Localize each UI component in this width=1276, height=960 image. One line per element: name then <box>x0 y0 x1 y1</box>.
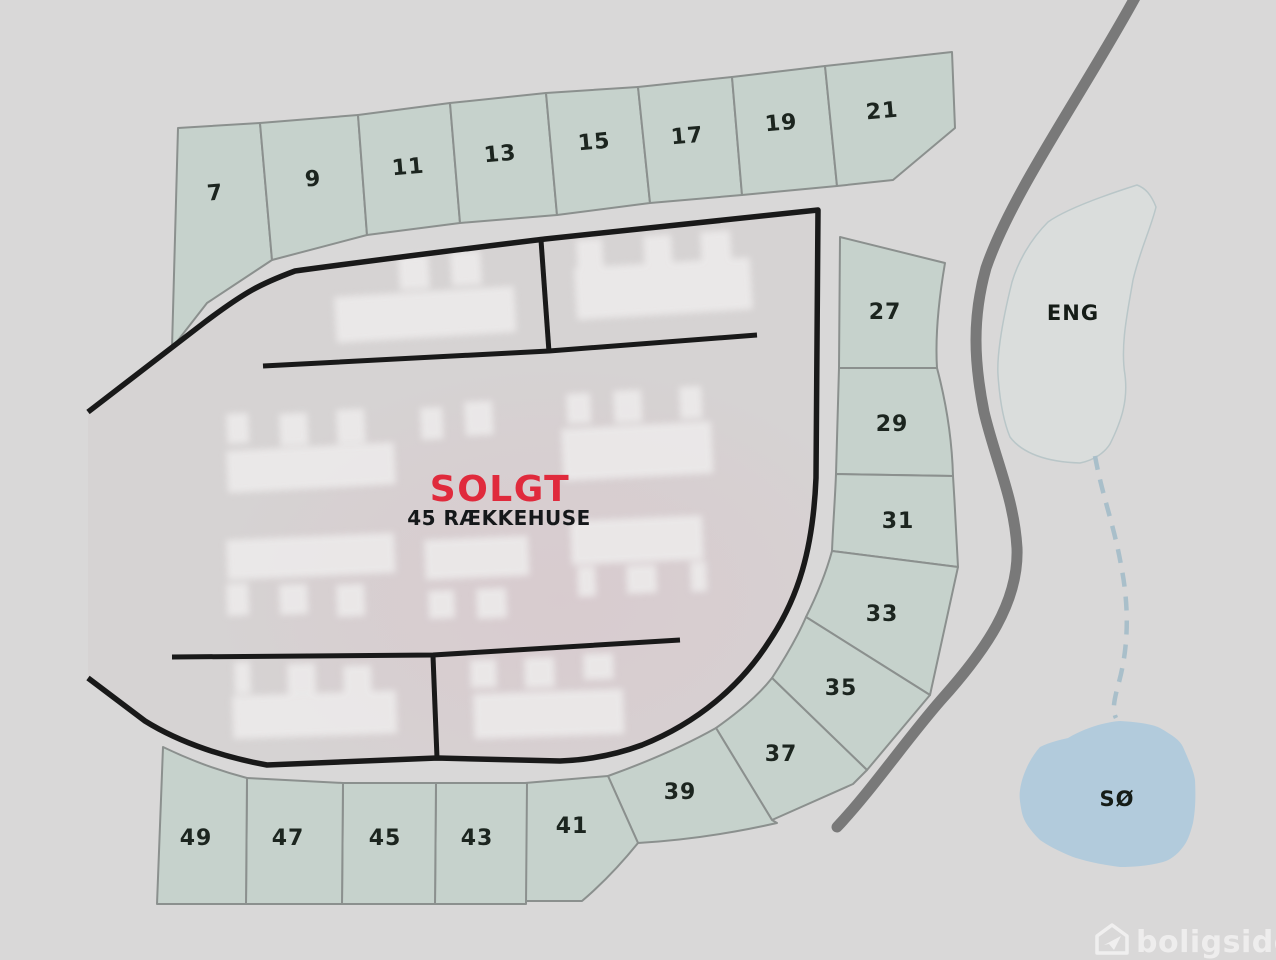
building-footprint <box>226 413 250 444</box>
building-footprint <box>583 653 614 680</box>
building-footprint <box>643 234 673 266</box>
building-footprint <box>336 409 366 444</box>
plot-label-37: 37 <box>765 742 798 767</box>
building-footprint <box>524 657 555 688</box>
building-footprint <box>613 390 643 423</box>
plot-label-27: 27 <box>869 300 902 325</box>
building-footprint <box>343 665 372 694</box>
building-footprint <box>464 401 494 436</box>
building-footprint <box>279 584 308 615</box>
building-footprint <box>561 421 714 481</box>
building-footprint <box>420 407 444 440</box>
plot-label-39: 39 <box>664 780 697 805</box>
building-footprint <box>424 535 530 579</box>
plot-label-31: 31 <box>882 509 915 534</box>
plot-label-41: 41 <box>556 814 589 839</box>
plot-label-47: 47 <box>272 826 305 851</box>
plot-label-29: 29 <box>876 412 909 437</box>
plot-label-43: 43 <box>461 826 494 851</box>
building-footprint <box>566 393 592 424</box>
plot-label-21: 21 <box>865 98 900 126</box>
site-plan: 7 9 11 13 15 17 19 21 27 29 31 33 35 37 … <box>0 0 1276 960</box>
plot-label-11: 11 <box>391 154 426 182</box>
sold-status-label: SOLGT <box>430 469 570 510</box>
building-footprint <box>287 663 316 694</box>
plot-label-45: 45 <box>369 826 402 851</box>
building-footprint <box>690 561 707 592</box>
building-footprint <box>473 689 624 739</box>
plot-label-13: 13 <box>483 141 518 169</box>
plot-label-35: 35 <box>825 676 858 701</box>
lake-label: SØ <box>1100 787 1135 811</box>
plot-label-19: 19 <box>764 110 799 138</box>
building-footprint <box>679 386 703 419</box>
building-footprint <box>232 690 397 739</box>
building-footprint <box>226 583 249 616</box>
building-footprint <box>336 584 365 617</box>
building-footprint <box>626 565 657 594</box>
building-footprint <box>450 250 482 286</box>
plot-label-7: 7 <box>206 180 224 206</box>
building-footprint <box>428 590 455 619</box>
building-footprint <box>574 257 753 320</box>
plot-label-15: 15 <box>577 129 612 157</box>
meadow-label: ENG <box>1047 301 1099 325</box>
building-footprint <box>226 533 396 580</box>
building-footprint <box>577 566 596 597</box>
watermark-brand-text: boligsiden <box>1136 925 1276 960</box>
building-footprint <box>476 588 507 619</box>
plot-label-17: 17 <box>670 123 705 151</box>
plot-label-33: 33 <box>866 602 899 627</box>
building-footprint <box>279 413 309 446</box>
site-plan-svg: 7 9 11 13 15 17 19 21 27 29 31 33 35 37 … <box>0 0 1276 960</box>
plot-label-9: 9 <box>304 166 322 192</box>
sold-subtitle-label: 45 RÆKKEHUSE <box>407 506 591 530</box>
building-footprint <box>226 442 396 493</box>
building-footprint <box>234 661 251 694</box>
building-footprint <box>470 659 497 688</box>
plot-label-49: 49 <box>180 826 213 851</box>
